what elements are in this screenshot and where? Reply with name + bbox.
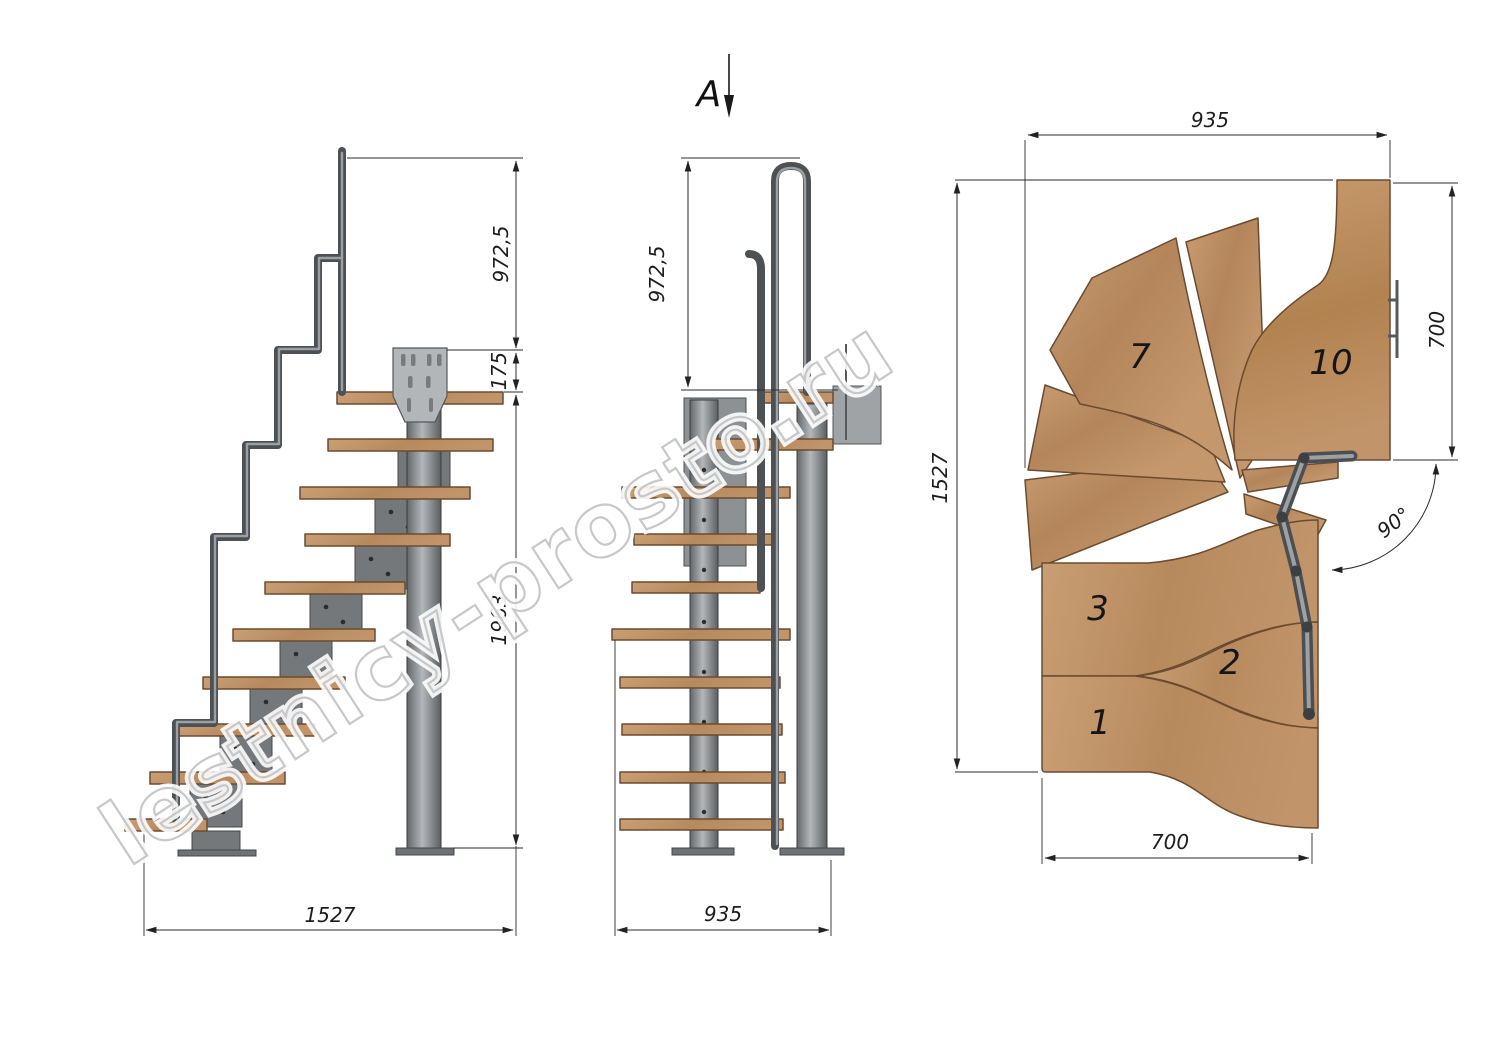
dim-side-rail-height: 972,5 (489, 225, 513, 282)
tread (300, 487, 470, 499)
front-support-column (797, 404, 827, 848)
tread (620, 677, 780, 688)
tread (612, 629, 790, 640)
dim-plan-total-depth: 1527 (928, 452, 952, 503)
tread-label-1: 1 (1089, 703, 1111, 743)
section-label: A (695, 74, 722, 115)
top-mounting-plate (393, 348, 447, 422)
technical-drawing-canvas: 972,5 175 1963 1527 A (0, 0, 1500, 1061)
tread-label-7: 7 (1129, 337, 1151, 377)
dim-plan-top-width: 935 (1191, 108, 1229, 132)
tread (620, 819, 783, 830)
section-marker: A (695, 54, 734, 118)
tread-label-3: 3 (1087, 589, 1109, 629)
section-arrow-head (724, 95, 734, 118)
dim-plan-flight-width: 700 (1151, 830, 1189, 854)
tread (620, 772, 785, 783)
tread-label-10: 10 (1309, 343, 1352, 383)
dim-plan-landing-depth: 700 (1425, 311, 1449, 349)
dim-side-platform-drop: 175 (487, 352, 511, 390)
dim-side-total-run: 1527 (305, 903, 356, 927)
column-base-flange (396, 848, 454, 855)
stringer-base-flange (672, 848, 734, 855)
front-column-base-flange (780, 848, 844, 855)
dim-plan-turn-angle: 90° (1372, 502, 1415, 543)
tread (632, 582, 760, 593)
plan-view: 1 2 3 7 10 935 1527 700 700 90° (928, 108, 1458, 864)
tread (328, 439, 493, 451)
tread (265, 582, 405, 594)
tread (305, 534, 450, 546)
tread (622, 724, 782, 735)
tread-label-2: 2 (1219, 643, 1241, 683)
staircase-drawing: 972,5 175 1963 1527 A (0, 0, 1500, 1061)
dim-front-width: 935 (704, 902, 742, 926)
dim-front-rail-height: 972,5 (645, 245, 669, 302)
